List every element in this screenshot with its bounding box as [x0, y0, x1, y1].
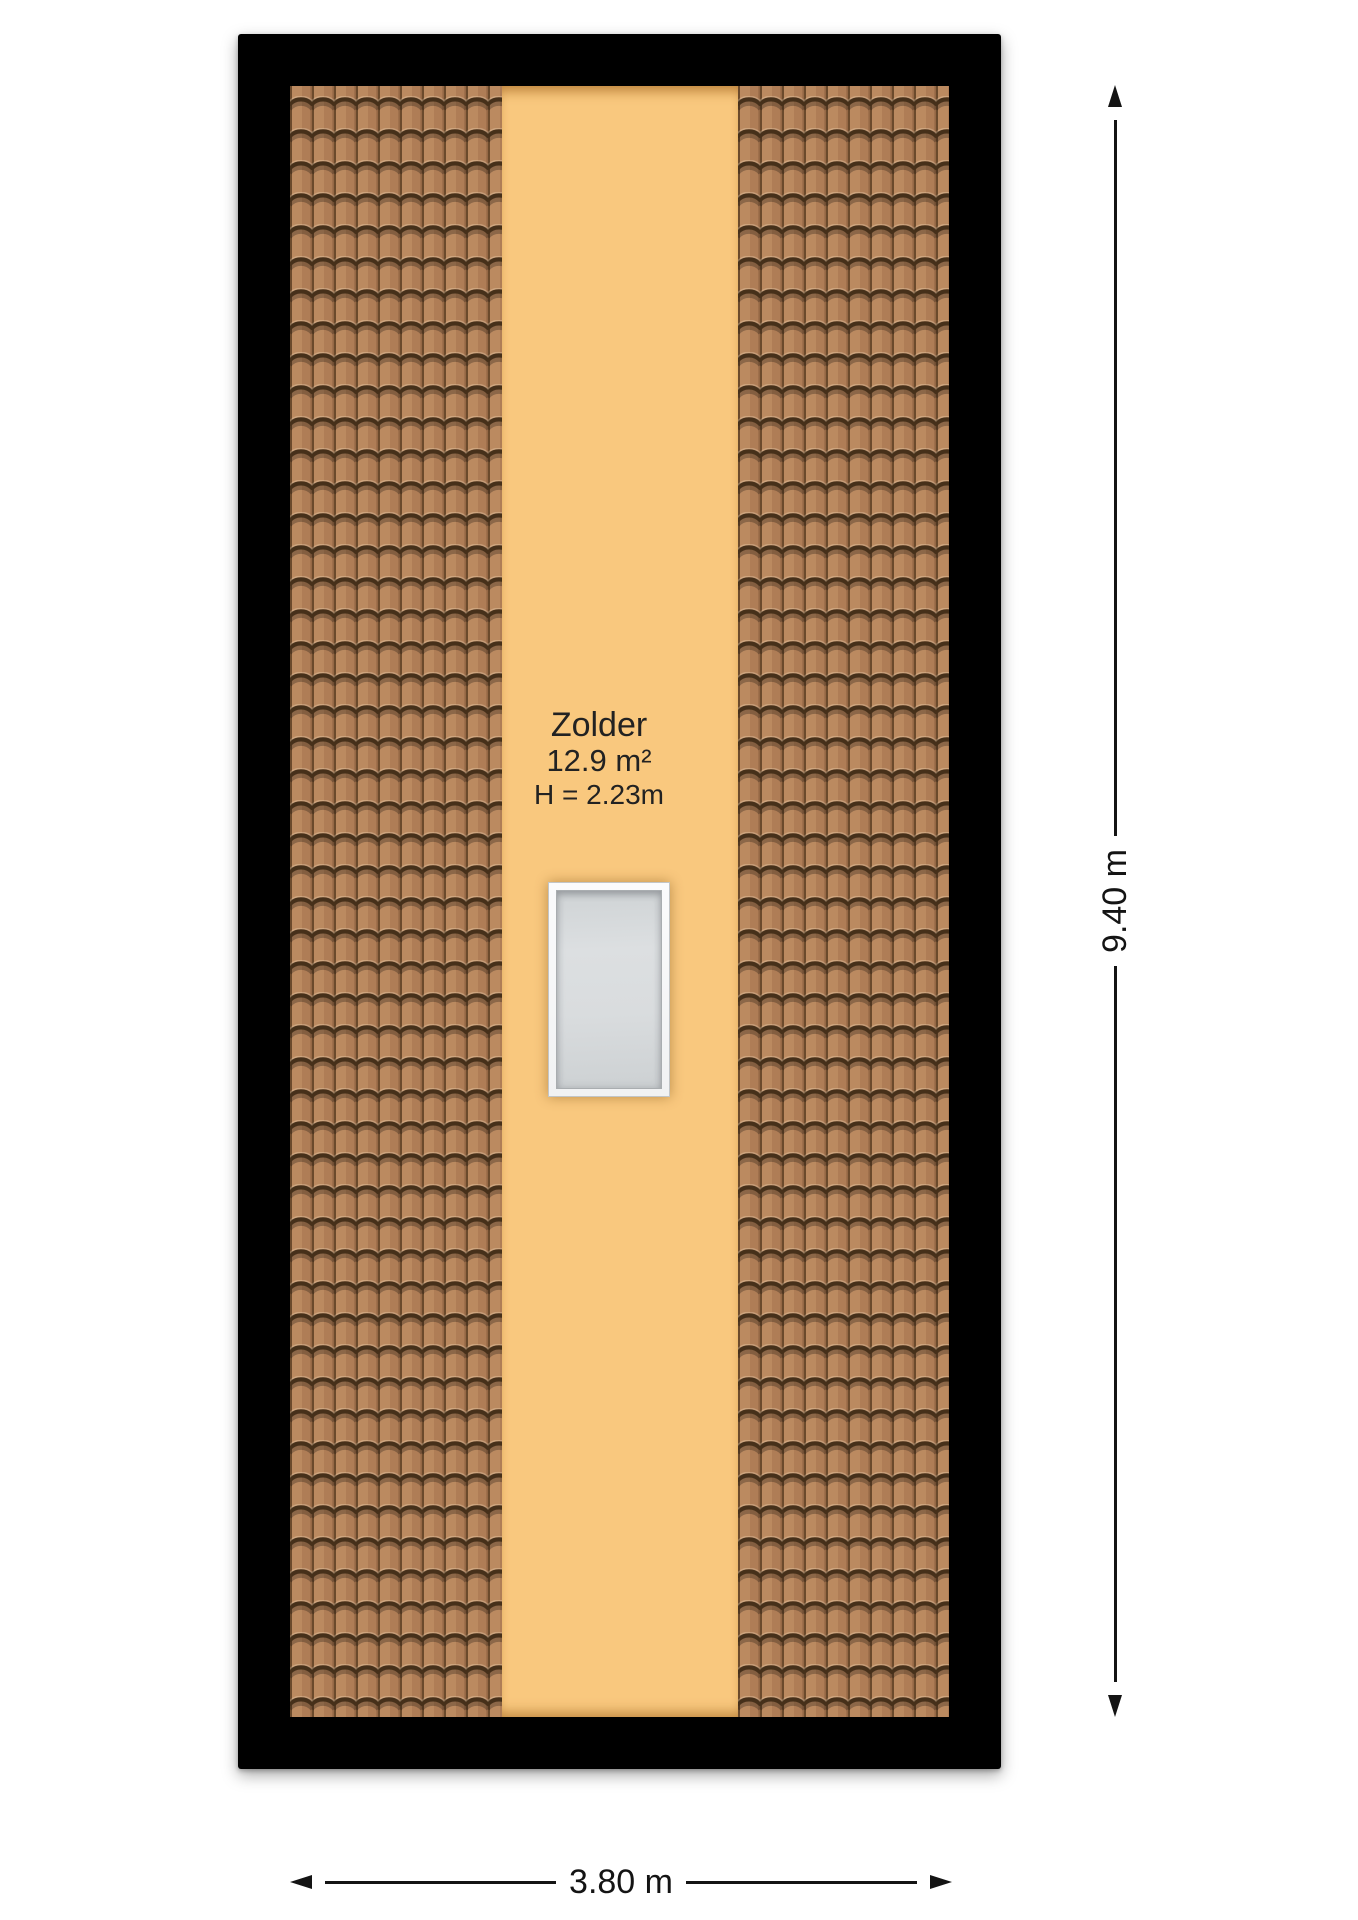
arrow-right-icon: [930, 1875, 952, 1889]
arrow-up-icon: [1108, 85, 1122, 107]
vertical-dimension: 9.40 m: [1102, 85, 1128, 1717]
skylight-glass: [556, 890, 662, 1089]
horizontal-dimension-label: 3.80 m: [569, 1863, 673, 1902]
room-name: Zolder: [502, 706, 696, 744]
roof-tiles-left: [290, 86, 502, 1717]
room-area: 12.9 m²: [502, 744, 696, 777]
skylight-window: [548, 882, 670, 1097]
building-interior: Zolder 12.9 m² H = 2.23m: [290, 86, 949, 1717]
arrow-left-icon: [290, 1875, 312, 1889]
roof-tiles-right: [738, 86, 949, 1717]
horizontal-dimension-line-left: [325, 1881, 556, 1884]
arrow-down-icon: [1108, 1695, 1122, 1717]
building-outline: Zolder 12.9 m² H = 2.23m: [238, 34, 1001, 1769]
room-label: Zolder 12.9 m² H = 2.23m: [502, 706, 696, 812]
horizontal-dimension-line-right: [686, 1881, 917, 1884]
vertical-dimension-label: 9.40 m: [1096, 849, 1135, 953]
vertical-dimension-line-bottom: [1114, 966, 1117, 1682]
attic-floor: Zolder 12.9 m² H = 2.23m: [502, 86, 738, 1717]
horizontal-dimension: 3.80 m: [290, 1858, 952, 1906]
room-ceiling-height: H = 2.23m: [502, 777, 696, 812]
floorplan-canvas: Zolder 12.9 m² H = 2.23m 9.40 m: [0, 0, 1358, 1920]
roof-tiles-right-texture: [738, 86, 949, 1717]
roof-tiles-left-texture: [290, 86, 502, 1717]
vertical-dimension-line-top: [1114, 120, 1117, 836]
